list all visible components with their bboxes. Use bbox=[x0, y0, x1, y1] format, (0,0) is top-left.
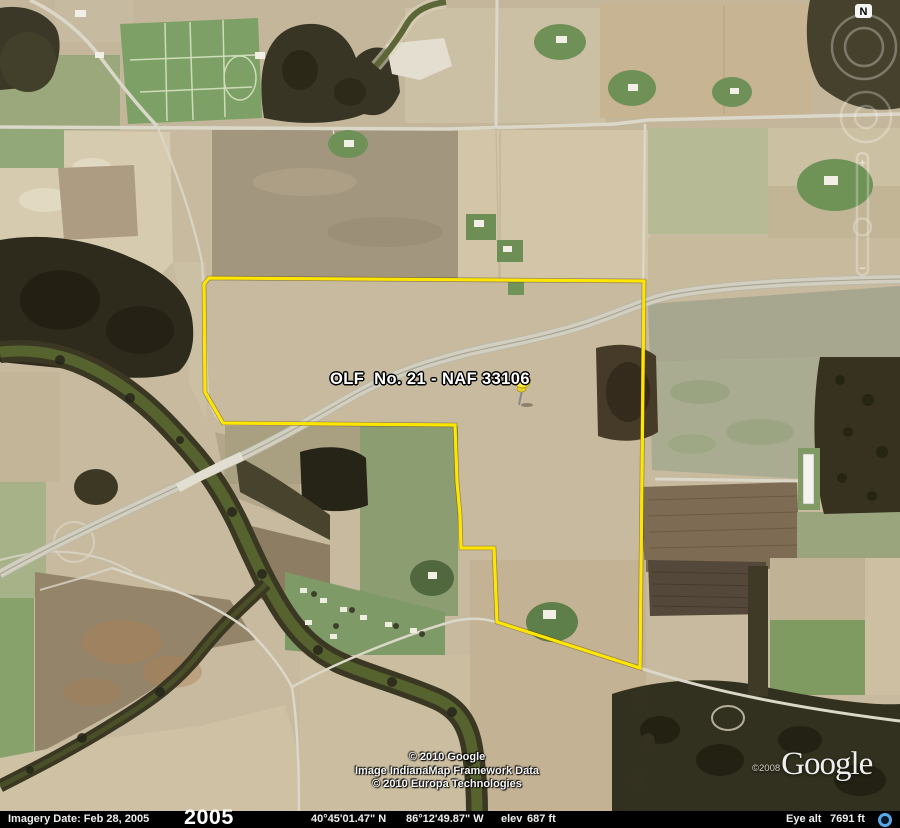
zoom-out-icon[interactable]: − bbox=[859, 261, 866, 275]
credit-line-indianamap: Image IndianaMap Framework Data bbox=[327, 765, 567, 779]
google-logo: Google bbox=[781, 748, 872, 781]
credit-line-europa: © 2010 Europa Technologies bbox=[327, 778, 567, 792]
status-bar: Imagery Date: Feb 28, 2005 2005 40°45'01… bbox=[0, 811, 900, 828]
google-earth-viewport: N + − OLF No. 21 - NAF 33106 © 2010 Goog… bbox=[0, 0, 900, 828]
google-watermark: ©2008 Google bbox=[752, 748, 898, 781]
eye-alt-label: Eye alt bbox=[786, 813, 821, 825]
zoom-in-icon[interactable]: + bbox=[859, 156, 866, 170]
credit-line-google: © 2010 Google bbox=[327, 751, 567, 765]
satellite-map[interactable]: N + − bbox=[0, 0, 900, 811]
elev-label: elev bbox=[501, 813, 522, 825]
watermark-year: ©2008 bbox=[752, 763, 780, 774]
placemark-label[interactable]: OLF No. 21 - NAF 33106 bbox=[330, 370, 530, 389]
streaming-indicator-icon bbox=[878, 813, 892, 827]
eye-alt-value: 7691 ft bbox=[830, 813, 865, 825]
elev-value: 687 ft bbox=[527, 813, 556, 825]
imagery-date: Imagery Date: Feb 28, 2005 bbox=[8, 813, 149, 825]
map-credits: © 2010 Google Image IndianaMap Framework… bbox=[327, 751, 567, 792]
timeline-year: 2005 bbox=[184, 805, 234, 828]
north-badge-label: N bbox=[860, 6, 868, 18]
long-barn bbox=[803, 454, 814, 504]
longitude-readout: 86°12'49.87" W bbox=[406, 813, 484, 825]
latitude-readout: 40°45'01.47" N bbox=[311, 813, 386, 825]
